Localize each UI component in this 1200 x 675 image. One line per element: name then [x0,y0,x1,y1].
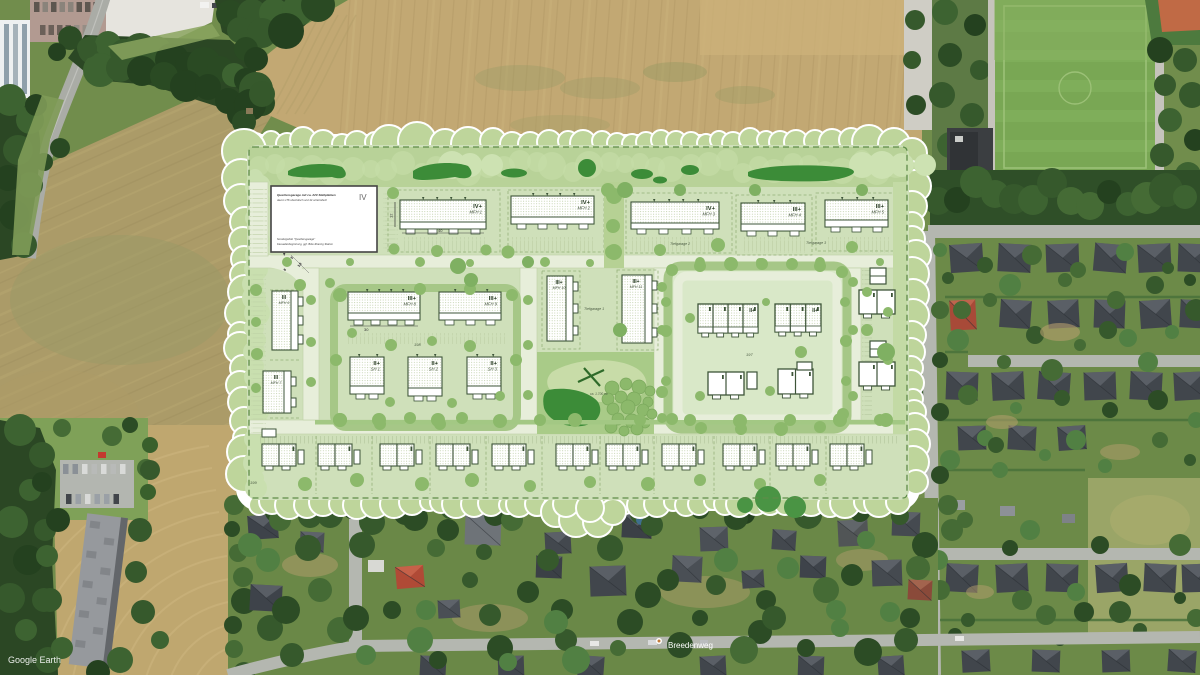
svg-text:SH 2: SH 2 [429,367,439,372]
svg-text:12: 12 [389,213,394,218]
svg-text:II+: II+ [749,308,755,314]
svg-text:Tiefgarage 1: Tiefgarage 1 [584,307,604,311]
svg-text:MFH 5: MFH 5 [871,210,884,215]
svg-text:MFH 3: MFH 3 [702,212,715,217]
svg-text:Breedenweg: Breedenweg [668,641,713,650]
svg-text:MFH 6: MFH 6 [279,301,290,305]
svg-text:IV: IV [359,193,367,202]
svg-text:30: 30 [364,327,369,332]
svg-text:Tiefgarage 3: Tiefgarage 3 [806,241,826,245]
svg-text:davon 176 oberirdisch und 44 u: davon 176 oberirdisch und 44 unterirdisc… [277,198,328,202]
svg-text:MFH 1: MFH 1 [469,210,482,215]
svg-text:MFH 7: MFH 7 [271,381,283,385]
svg-text:MFH 10: MFH 10 [553,286,566,290]
svg-text:199: 199 [250,480,257,485]
svg-text:MFH 4: MFH 4 [788,213,801,218]
svg-text:Fassadenbegrünung, ggf. Bike-S: Fassadenbegrünung, ggf. Bike-Sharing Sta… [277,242,333,246]
svg-text:Sondergebiet "Quartiersgarage": Sondergebiet "Quartiersgarage" [277,237,316,241]
svg-text:197: 197 [746,352,753,357]
svg-text:198: 198 [414,342,421,347]
svg-text:MFH 8: MFH 8 [403,302,416,307]
svg-text:MFH 11: MFH 11 [630,285,643,289]
svg-text:MFH 2: MFH 2 [577,206,590,211]
svg-text:II+: II+ [812,308,818,314]
svg-text:Google Earth: Google Earth [8,655,61,665]
svg-text:Tiefgarage 2: Tiefgarage 2 [670,242,690,246]
svg-text:40: 40 [438,228,443,233]
svg-text:Quartiersgarage mit ca. 220 St: Quartiersgarage mit ca. 220 Stellplätzen [277,193,336,197]
svg-text:SH 3: SH 3 [488,367,498,372]
svg-text:ca. 1.700 m²: ca. 1.700 m² [590,392,609,396]
svg-text:MFH 9: MFH 9 [484,302,497,307]
svg-text:SH 1: SH 1 [371,367,380,372]
